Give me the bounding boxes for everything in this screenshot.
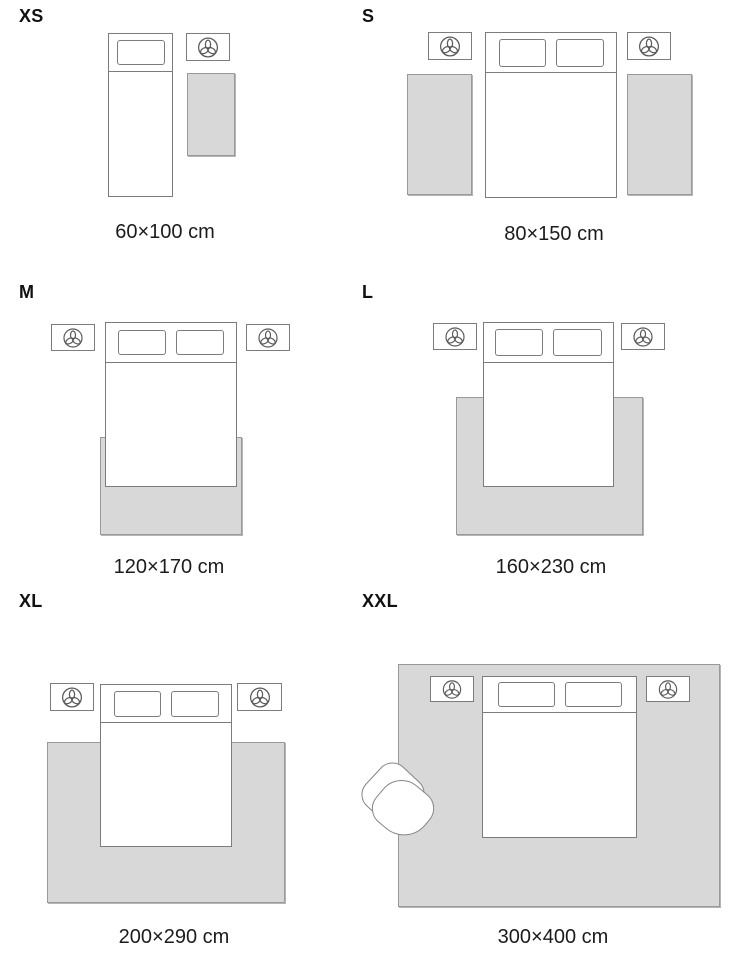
- bed-headboard: [106, 323, 236, 363]
- plant-icon: [240, 685, 280, 710]
- double-bed: [485, 32, 617, 198]
- bed-headboard: [483, 677, 636, 713]
- plant-icon: [432, 678, 472, 701]
- pillow: [114, 691, 161, 717]
- plant-icon: [648, 678, 688, 701]
- rug-left: [407, 74, 472, 195]
- size-dimensions-xl: 200×290 cm: [74, 926, 274, 949]
- double-bed: [483, 322, 614, 487]
- pillow: [565, 682, 622, 707]
- double-bed: [100, 684, 232, 847]
- size-dimensions-s: 80×150 cm: [454, 223, 654, 246]
- nightstand-right: [237, 683, 282, 711]
- double-bed: [105, 322, 237, 487]
- size-label-xxl: XXL: [362, 591, 398, 612]
- nightstand-left: [430, 676, 474, 702]
- pillow: [556, 39, 604, 67]
- double-bed: [482, 676, 637, 838]
- size-dimensions-l: 160×230 cm: [451, 556, 651, 579]
- pillow: [498, 682, 555, 707]
- nightstand-left: [433, 323, 477, 350]
- size-label-l: L: [362, 282, 373, 303]
- pillow: [118, 330, 166, 355]
- plant-icon: [248, 326, 288, 350]
- pillow: [171, 691, 219, 717]
- rug-size-guide: XS 60×100 cm S 80×150 cm: [0, 0, 740, 960]
- pillow: [553, 329, 602, 356]
- size-label-m: M: [19, 282, 34, 303]
- pillow: [499, 39, 546, 67]
- nightstand-left: [50, 683, 94, 711]
- nightstand-right: [627, 32, 671, 60]
- bed-headboard: [101, 685, 231, 723]
- pillow: [495, 329, 543, 356]
- nightstand-right: [621, 323, 665, 350]
- pillow: [117, 40, 165, 65]
- plant-icon: [435, 325, 475, 349]
- size-label-xs: XS: [19, 6, 44, 27]
- plant-icon: [623, 325, 663, 349]
- single-bed: [108, 33, 173, 197]
- pillow: [176, 330, 224, 355]
- nightstand-left: [51, 324, 95, 351]
- size-dimensions-xs: 60×100 cm: [65, 221, 265, 244]
- bed-headboard: [484, 323, 613, 363]
- nightstand-right: [246, 324, 290, 351]
- size-label-s: S: [362, 6, 374, 27]
- bed-headboard: [486, 33, 616, 73]
- plant-icon: [53, 326, 93, 350]
- plant-icon: [629, 34, 669, 59]
- size-label-xl: XL: [19, 591, 43, 612]
- nightstand: [186, 33, 230, 61]
- bed-headboard: [109, 34, 172, 72]
- nightstand-right: [646, 676, 690, 702]
- size-dimensions-m: 120×170 cm: [69, 556, 269, 579]
- size-dimensions-xxl: 300×400 cm: [453, 926, 653, 949]
- nightstand-left: [428, 32, 472, 60]
- plant-icon: [52, 685, 92, 710]
- rug: [187, 73, 235, 156]
- plant-icon: [430, 34, 470, 59]
- plant-icon: [188, 35, 228, 60]
- rug-right: [627, 74, 692, 195]
- armchair: [355, 758, 447, 850]
